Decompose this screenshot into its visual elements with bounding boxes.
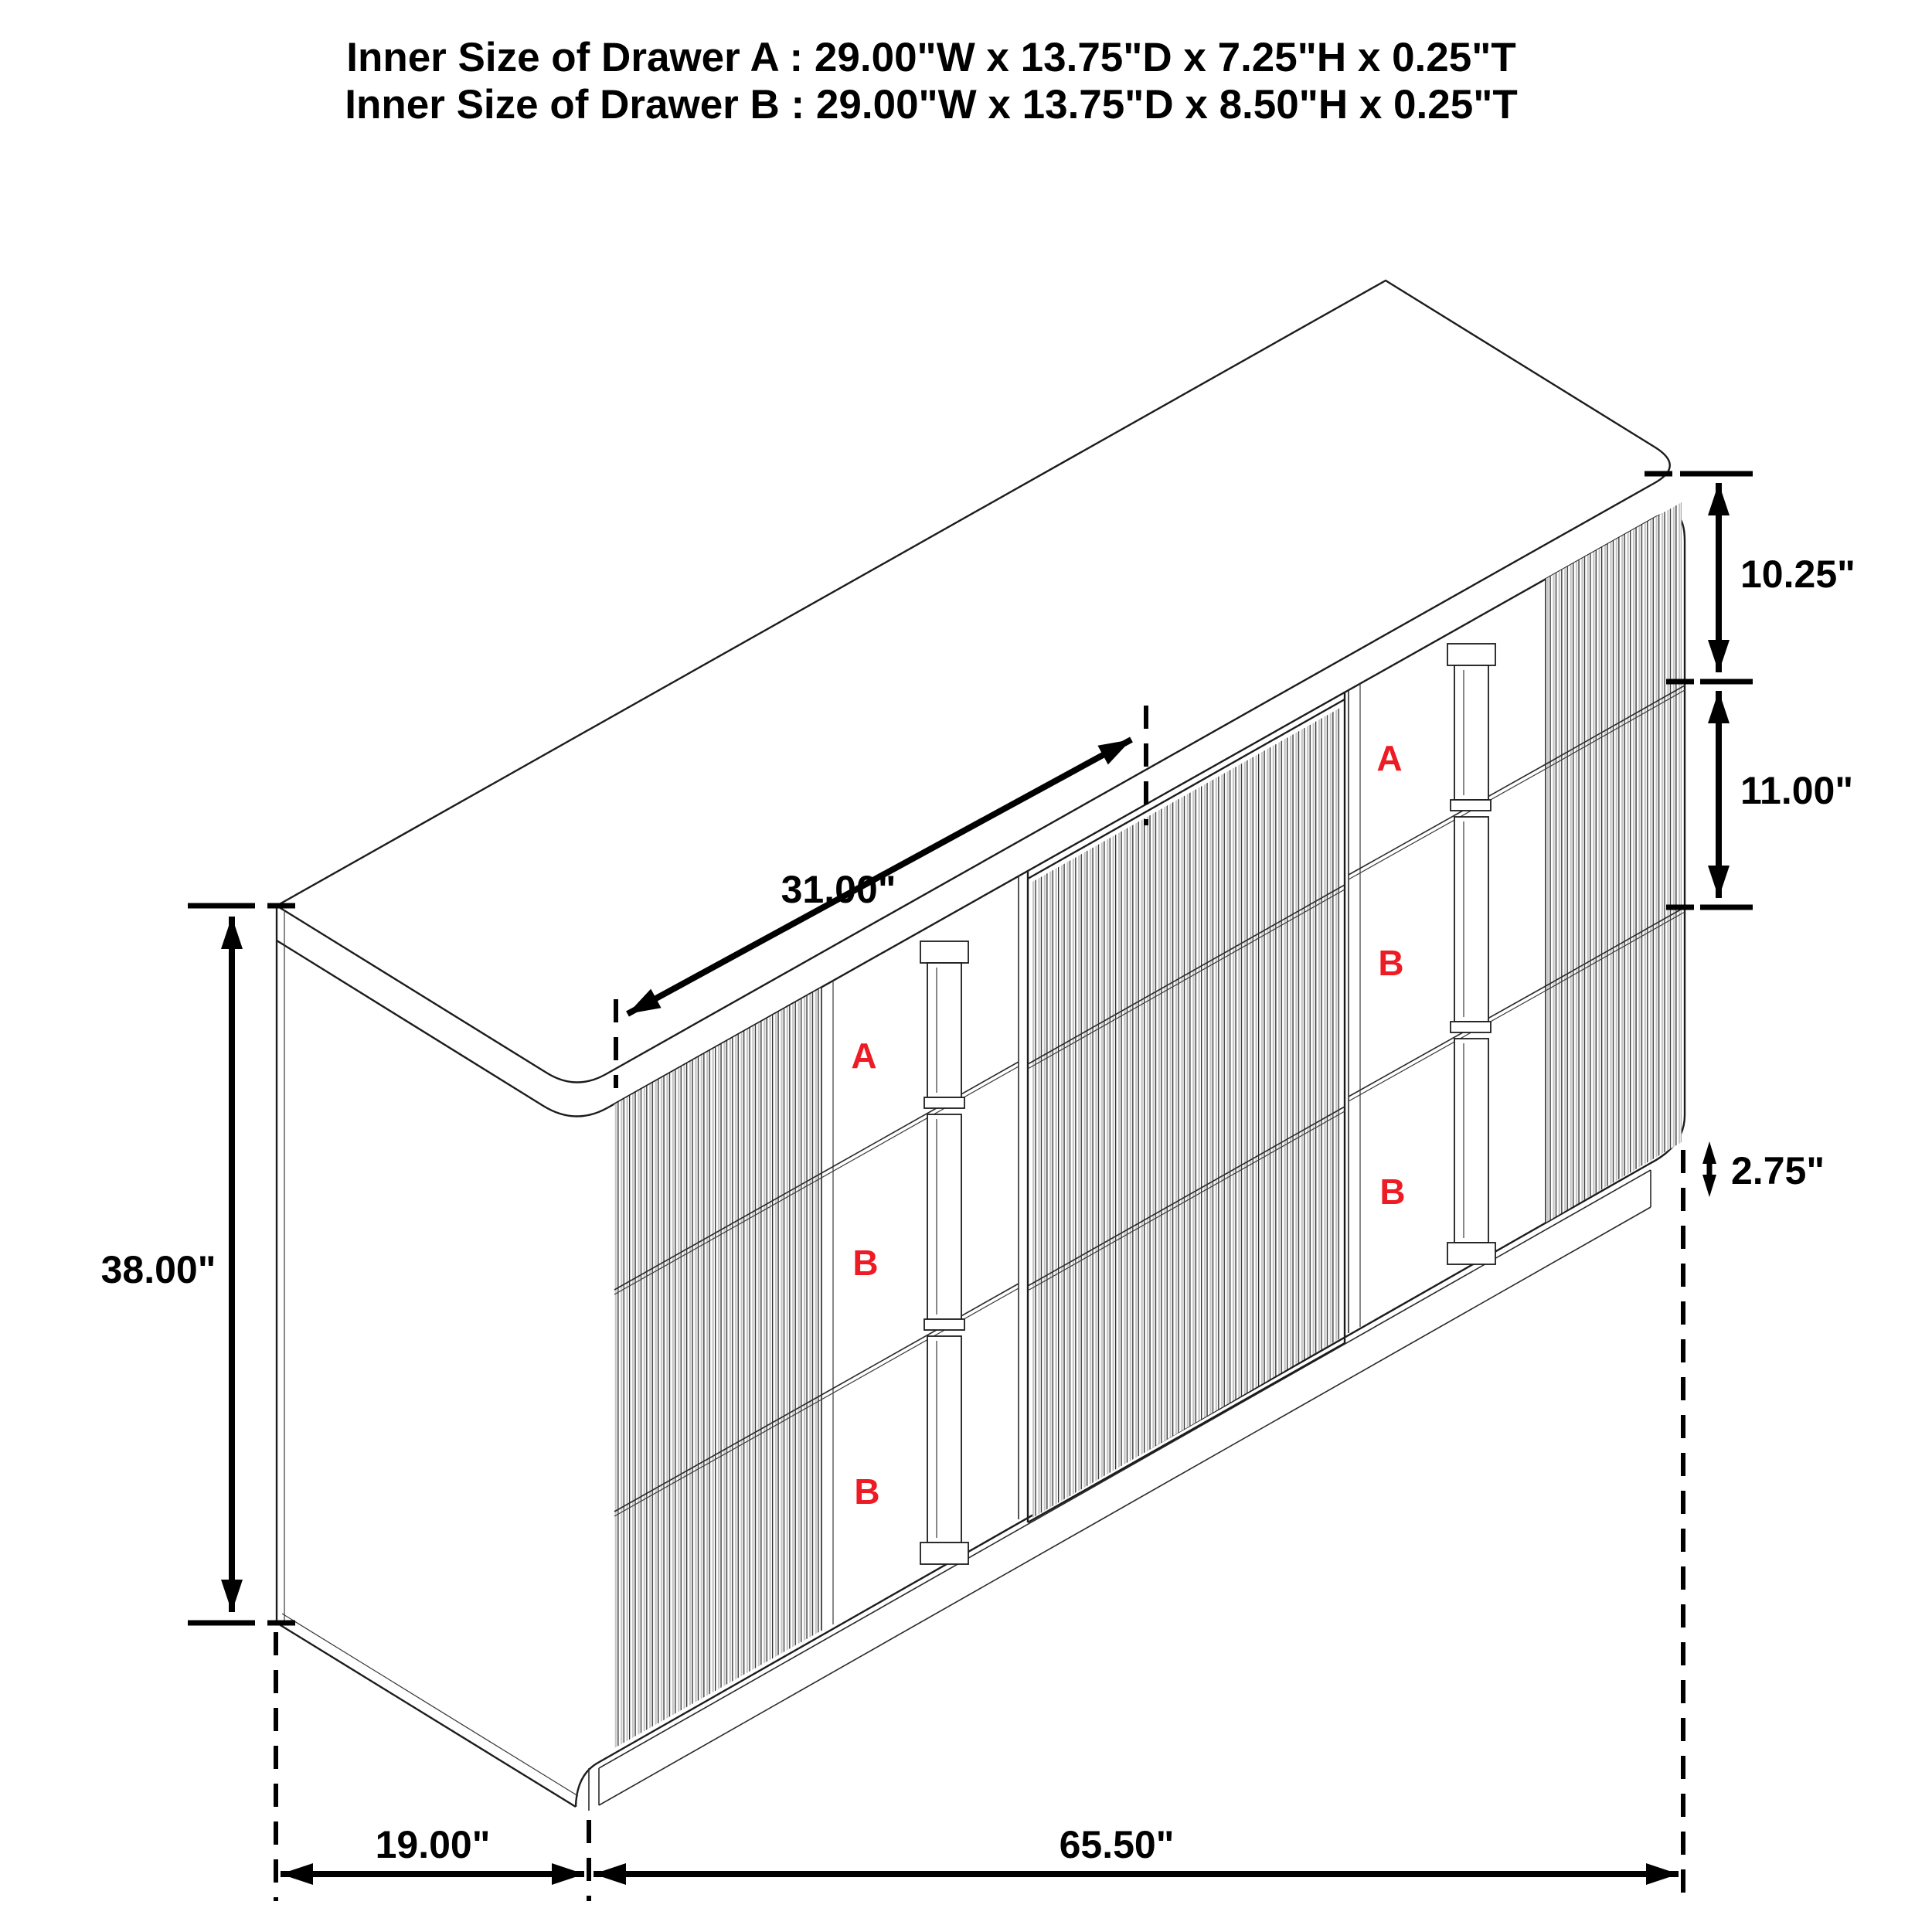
fluted-front-sections (614, 502, 1682, 1748)
fluted-right-section (1546, 502, 1682, 1223)
left-drawer-handle (920, 941, 968, 1564)
fluted-sliding-door-panel (1032, 708, 1340, 1518)
title-block: Inner Size of Drawer A : 29.00"W x 13.75… (345, 35, 1517, 128)
dimension-toekick: 2.75" (1683, 1141, 1825, 1901)
dimension-middle-drawer-height: 11.00" (1666, 691, 1853, 907)
toekick-value: 2.75" (1731, 1149, 1825, 1192)
right-bank-label-b1: B (1378, 943, 1403, 983)
door-width-value: 31.00" (781, 868, 896, 911)
cabinet-drawing: A B B A B B (277, 281, 1685, 1811)
overall-height-value: 38.00" (101, 1248, 216, 1291)
depth-value: 19.00" (376, 1823, 491, 1866)
cabinet-left-side (277, 906, 578, 1807)
diagram-canvas: Inner Size of Drawer A : 29.00"W x 13.75… (0, 0, 1932, 1932)
title-line-drawer-a: Inner Size of Drawer A : 29.00"W x 13.75… (346, 35, 1516, 80)
right-bank-label-a: A (1376, 738, 1402, 778)
furniture-dimension-diagram: Inner Size of Drawer A : 29.00"W x 13.75… (0, 0, 1932, 1932)
middle-drawer-height-value: 11.00" (1740, 769, 1853, 812)
dimension-depth: 19.00" (276, 1632, 589, 1901)
right-bank-label-b2: B (1379, 1172, 1405, 1212)
overall-width-value: 65.50" (1060, 1823, 1175, 1866)
dimension-overall-width: 65.50" (594, 1823, 1679, 1874)
top-drawer-height-value: 10.25" (1740, 553, 1855, 596)
dimension-overall-height: 38.00" (101, 906, 295, 1623)
title-line-drawer-b: Inner Size of Drawer B : 29.00"W x 13.75… (345, 82, 1517, 128)
fluted-left-section (614, 988, 821, 1748)
right-drawer-handle (1447, 644, 1495, 1264)
left-bank-label-a: A (851, 1036, 876, 1076)
left-bank-label-b2: B (854, 1471, 879, 1512)
left-bank-label-b1: B (852, 1243, 878, 1283)
